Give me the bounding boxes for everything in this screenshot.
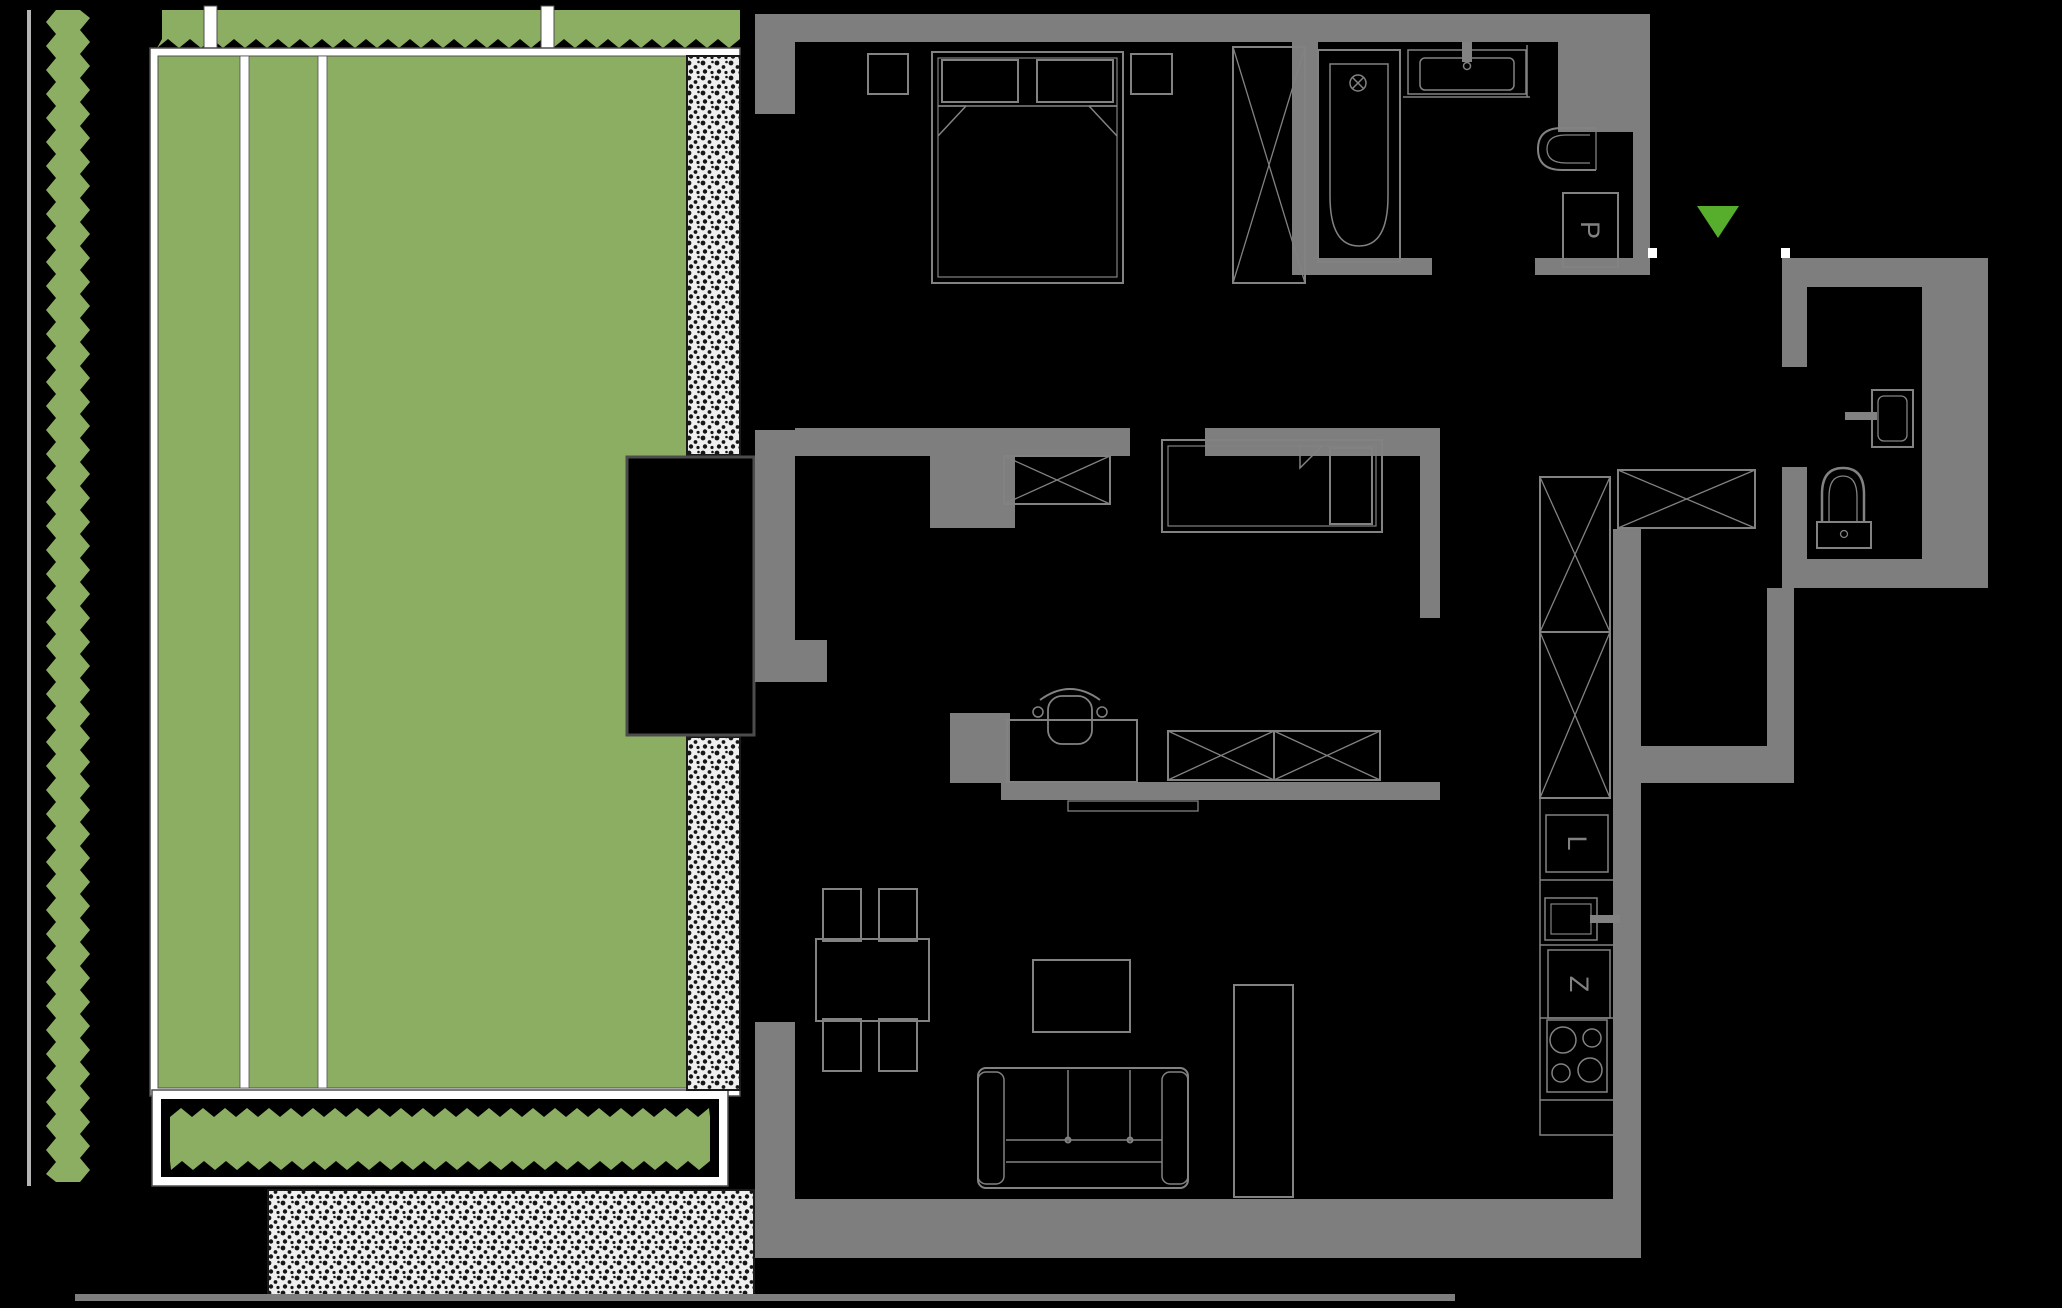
- desk-chair-arm-left: [1033, 707, 1043, 717]
- living-room: [816, 889, 1293, 1197]
- burner-2: [1583, 1029, 1601, 1047]
- entry-door-jamb-right: [1781, 248, 1790, 258]
- vanity-drain: [1464, 63, 1471, 70]
- wall-left-a: [755, 14, 795, 114]
- wall-wc-south: [1782, 559, 1988, 588]
- single-bed-inner: [1168, 446, 1376, 526]
- hedge-top: [157, 10, 740, 48]
- kids-room: [1004, 440, 1382, 811]
- nightstand-right: [1131, 54, 1172, 94]
- dining-table: [816, 939, 929, 1021]
- kids-pillow: [1330, 448, 1372, 524]
- kitchen-tall-cabinet-2: [1540, 632, 1610, 798]
- paving-strip-upper: [687, 56, 740, 455]
- toilet-button: [1841, 531, 1848, 538]
- kids-sideboard-right: [1274, 731, 1380, 780]
- wall-kids-east: [1420, 456, 1440, 618]
- tv-board: [1068, 801, 1198, 811]
- dining-chair-1: [823, 889, 861, 941]
- wall-left-step: [795, 640, 827, 682]
- paving-band-bottom: [268, 1190, 754, 1296]
- wall-bedroom-south-b: [1205, 428, 1440, 456]
- sofa-arm-right: [1162, 1072, 1188, 1184]
- toilet-cistern: [1817, 522, 1871, 548]
- entrance-arrow-icon: [1697, 206, 1739, 238]
- hedge-top-divider-2: [541, 6, 554, 53]
- burner-1: [1550, 1027, 1576, 1053]
- sofa-arm-left: [978, 1072, 1004, 1184]
- bathroom-toilet-inner: [1547, 128, 1596, 170]
- walls: [755, 14, 1988, 1258]
- tv-cabinet: [1234, 985, 1293, 1197]
- lawn-divider-2: [318, 56, 327, 1088]
- paving-strip-lower: [687, 737, 740, 1090]
- vanity-faucet-icon: [1462, 42, 1472, 62]
- wall-bathroom-south-a: [1292, 258, 1432, 275]
- sofa-cushions: [1006, 1070, 1162, 1162]
- dishwasher-label: Z: [1564, 976, 1594, 993]
- dining-chair-3: [823, 1019, 861, 1071]
- desk-chair-arm-right: [1097, 707, 1107, 717]
- corner-basin-inner: [1878, 396, 1907, 441]
- garden: [27, 6, 1455, 1301]
- wall-bottom: [755, 1199, 1641, 1258]
- coffee-table: [1033, 960, 1130, 1032]
- pillow-right: [1037, 60, 1113, 102]
- sofa: [978, 1068, 1188, 1188]
- dining-chair-4: [879, 1019, 917, 1071]
- wall-kids-block: [930, 428, 1015, 528]
- wall-wc-west-b: [1782, 467, 1807, 559]
- wall-bathroom-corner-block: [1558, 42, 1650, 132]
- basin-faucet-knob: [1845, 412, 1853, 420]
- desk: [1007, 720, 1137, 782]
- wc: [1817, 390, 1913, 548]
- ground-line: [75, 1294, 1455, 1301]
- wall-wc-west-a: [1782, 287, 1807, 367]
- washing-machine-label: P: [1575, 221, 1605, 239]
- wall-kids-south: [1001, 782, 1440, 800]
- hedge-bottom: [170, 1108, 710, 1170]
- wall-desk-stub: [950, 713, 1010, 783]
- hall-wardrobe: [1618, 470, 1755, 528]
- floor-plan-drawing: P L Z: [0, 0, 2062, 1308]
- double-bed-inner: [938, 58, 1117, 277]
- floor-plan-canvas: P L Z: [0, 0, 2062, 1308]
- garden-edge-line: [27, 10, 31, 1186]
- desk-chair-back: [1040, 689, 1100, 700]
- lawn-divider-1: [240, 56, 249, 1088]
- entry-door-jamb-left: [1648, 248, 1657, 258]
- double-bed: [932, 52, 1123, 283]
- dining-chair-2: [879, 889, 917, 941]
- fridge-label: L: [1562, 835, 1592, 850]
- wall-bathroom-east: [1633, 132, 1650, 258]
- kitchen-sink-inner: [1551, 904, 1591, 934]
- toilet-bowl-inner: [1829, 476, 1857, 522]
- blanket-fold-right: [1089, 106, 1117, 136]
- burner-3: [1552, 1064, 1570, 1082]
- kitchen-tall-cabinet-1: [1540, 477, 1610, 632]
- kitchen: [1540, 477, 1620, 1135]
- wall-hall-south: [1641, 746, 1794, 783]
- pillow-left: [942, 60, 1018, 102]
- terrace-recess: [627, 457, 754, 735]
- kids-sideboard-left: [1168, 731, 1274, 780]
- wall-kitchen-east: [1613, 529, 1641, 1199]
- kids-wardrobe: [1004, 456, 1110, 504]
- wall-left-b: [755, 430, 795, 682]
- hedge-top-divider-1: [204, 6, 217, 53]
- bedroom-main: [868, 47, 1305, 283]
- wall-wc-east: [1922, 258, 1988, 588]
- hedge-left: [46, 10, 90, 1182]
- kitchen-faucet-knob: [1590, 915, 1598, 923]
- blanket-fold-left: [938, 106, 966, 136]
- nightstand-left: [868, 54, 908, 94]
- bathtub-drain-cross: [1352, 77, 1364, 89]
- furniture: [816, 42, 1913, 1197]
- wall-top: [755, 14, 1650, 42]
- burner-4: [1578, 1058, 1602, 1082]
